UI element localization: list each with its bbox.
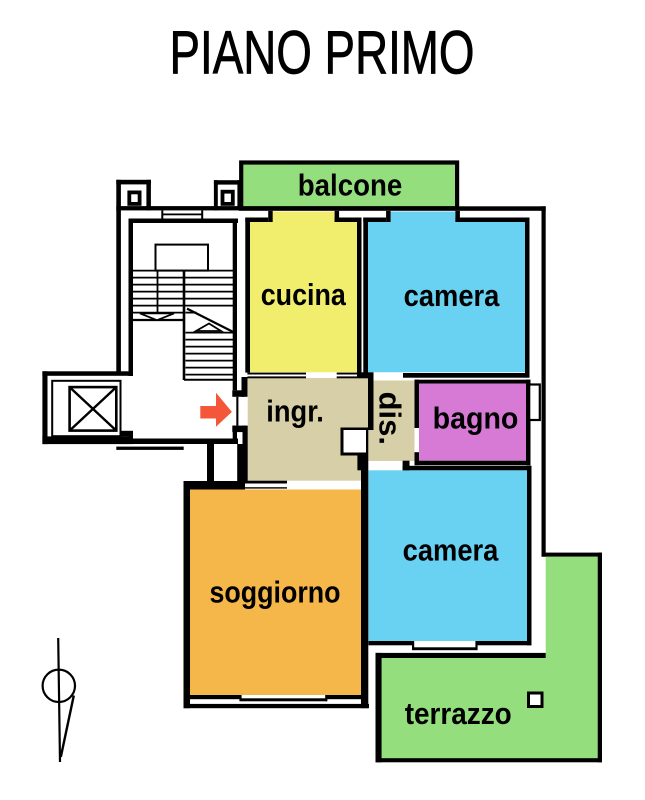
svg-text:terrazzo: terrazzo [405, 697, 512, 731]
svg-text:dis.: dis. [373, 392, 407, 445]
svg-text:camera: camera [404, 279, 501, 313]
svg-text:camera: camera [403, 534, 500, 568]
svg-text:balcone: balcone [298, 168, 402, 202]
svg-text:PIANO PRIMO: PIANO PRIMO [170, 19, 475, 88]
svg-text:soggiorno: soggiorno [209, 575, 340, 609]
svg-text:bagno: bagno [433, 402, 519, 436]
svg-text:ingr.: ingr. [266, 394, 324, 428]
svg-text:cucina: cucina [261, 278, 347, 312]
